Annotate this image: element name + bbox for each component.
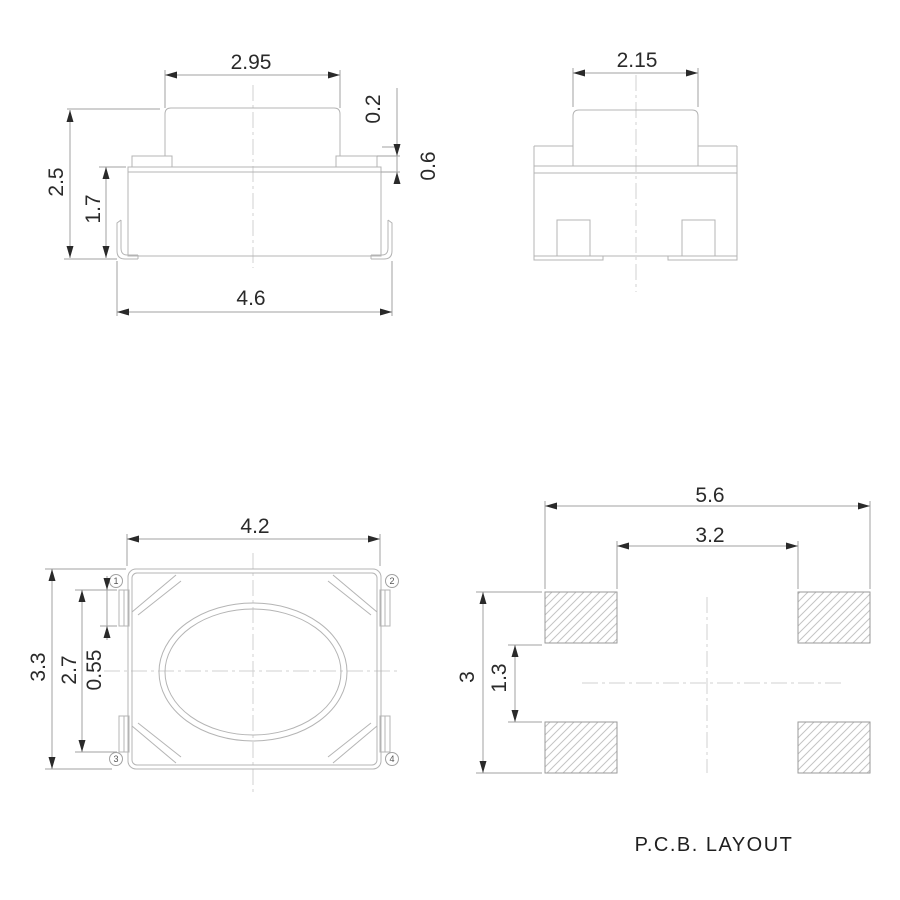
dim-label-bump-height: 0.6 — [417, 151, 440, 180]
pcb-pad-top-left — [545, 592, 617, 643]
pcb-pad-bottom-left — [545, 722, 617, 773]
tact-switch-drawing: 2.95 0.2 0.6 2.5 1.7 4.6 2.15 — [0, 0, 900, 900]
switch-body-front — [128, 167, 381, 256]
dim-label-total-height: 2.5 — [45, 167, 68, 196]
dim-label-pad-inner-width: 3.2 — [695, 524, 724, 547]
pin-balloon-2: 2 — [386, 575, 399, 588]
svg-text:3: 3 — [113, 754, 118, 764]
front-view-outline — [117, 108, 392, 259]
corner-chamfer-bottom-right — [328, 723, 377, 763]
pcb-layout-title: P.C.B. LAYOUT — [635, 834, 794, 856]
dim-label-pad-outer-width: 5.6 — [695, 484, 724, 507]
pcb-pad-bottom-right — [798, 722, 870, 773]
dim-label-pad-inner-height: 1.3 — [488, 663, 511, 692]
top-view-outline — [119, 569, 390, 769]
side-view: 2.15 — [534, 49, 737, 292]
dim-label-body-width: 4.2 — [240, 515, 269, 538]
terminal-leg-left — [557, 220, 590, 256]
dim-label-pad-outer-height: 3 — [456, 671, 479, 683]
front-view: 2.95 0.2 0.6 2.5 1.7 4.6 — [45, 51, 440, 316]
svg-text:4: 4 — [389, 754, 394, 764]
dim-label-actuator-depth: 2.15 — [617, 49, 658, 72]
svg-text:1: 1 — [113, 576, 118, 586]
pin-balloon-3: 3 — [110, 753, 123, 766]
top-view: 1 2 3 4 — [27, 515, 400, 792]
corner-chamfer-bottom-left — [132, 723, 181, 763]
dim-label-actuator-width: 2.95 — [231, 51, 272, 74]
cover-bump-right — [336, 156, 377, 167]
body-inner-top — [132, 573, 377, 765]
dim-label-body-height: 1.7 — [82, 194, 105, 223]
pin-balloon-1: 1 — [110, 575, 123, 588]
corner-chamfer-top-left — [132, 575, 181, 615]
dim-label-flange-step: 0.2 — [362, 94, 385, 123]
pcb-layout-view: 5.6 3.2 3 1.3 P.C.B. LAYOUT — [456, 484, 870, 856]
dim-label-terminal-width: 0.55 — [83, 650, 106, 691]
corner-chamfer-top-right — [328, 575, 377, 615]
front-extension-lines — [64, 70, 400, 316]
front-dimension-lines — [70, 75, 397, 312]
pcb-pad-top-right — [798, 592, 870, 643]
dim-label-overall-depth: 3.3 — [27, 652, 50, 681]
pin-balloon-4: 4 — [386, 753, 399, 766]
dim-label-overall-width: 4.6 — [236, 287, 265, 310]
svg-text:2: 2 — [389, 576, 394, 586]
dim-label-terminal-span: 2.7 — [58, 655, 81, 684]
terminal-leg-right — [682, 220, 715, 256]
body-outer-top — [128, 569, 381, 769]
seating-strip-right — [668, 256, 737, 260]
seating-strip-left — [534, 256, 603, 260]
cover-bump-left — [132, 156, 172, 167]
drawing-sheet: 2.95 0.2 0.6 2.5 1.7 4.6 2.15 — [0, 0, 900, 900]
